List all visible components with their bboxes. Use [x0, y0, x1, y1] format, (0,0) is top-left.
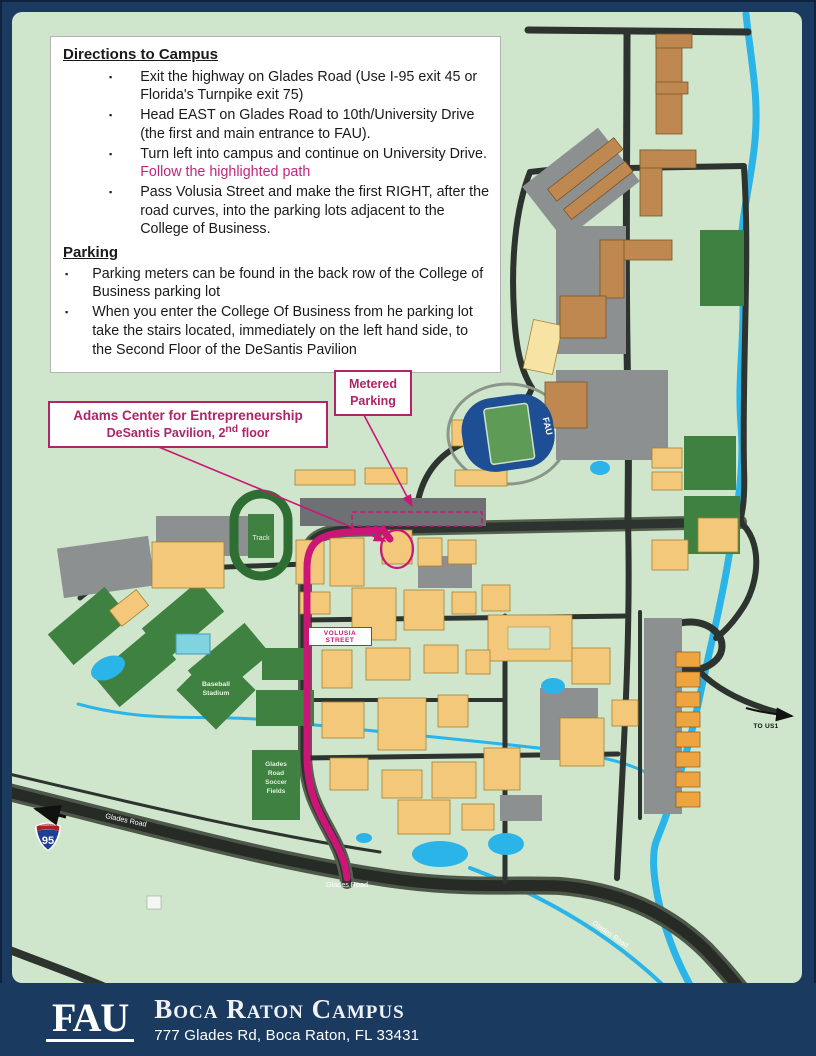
soccer-label-4: Fields: [267, 788, 286, 795]
parking-lot: [522, 128, 640, 241]
campus-name: Boca Raton Campus: [154, 995, 419, 1023]
baseball-stadium-label: Baseball: [202, 681, 230, 688]
parking-note-text: Parking meters can be found in the back …: [92, 265, 490, 302]
metered-parking-label: Metered Parking: [334, 370, 412, 416]
parking-note: ▪ When you enter the College Of Business…: [63, 303, 490, 359]
adams-center-title: Adams Center for Entrepreneurship: [52, 408, 324, 423]
direction-step-text: Head EAST on Glades Road to 10th/Univers…: [140, 106, 490, 143]
building: [322, 702, 364, 738]
apartment-building: [676, 672, 700, 687]
practice-field: [262, 648, 306, 680]
baseball-stadium-label2: Stadium: [203, 690, 230, 697]
bullet-marker: ▪: [65, 303, 68, 359]
building: [560, 296, 606, 338]
building: [322, 650, 352, 688]
apartment-building: [676, 712, 700, 727]
apartment-building: [676, 652, 700, 667]
dorm-building: [600, 240, 624, 298]
adams-subtitle-pre: DeSantis Pavilion, 2: [107, 426, 226, 440]
dorm-building: [656, 82, 688, 94]
building: [652, 448, 682, 468]
parking-note-text: When you enter the College Of Business f…: [92, 303, 490, 359]
athletic-field: [700, 230, 744, 306]
building: [652, 472, 682, 490]
adams-center-subtitle: DeSantis Pavilion, 2nd floor: [52, 424, 324, 440]
building: [365, 468, 407, 484]
highlighted-path-note: Follow the highlighted path: [140, 164, 310, 180]
building: [698, 518, 738, 552]
pond: [356, 833, 372, 843]
glades-road-label-center: Glades Road: [326, 880, 368, 889]
building: [438, 695, 468, 727]
directions-box: Directions to Campus ▪ Exit the highway …: [50, 36, 501, 373]
campus-map-page: FAU INTERSTATE 95: [0, 0, 816, 1056]
direction-step: ▪ Exit the highway on Glades Road (Use I…: [63, 68, 490, 105]
athletic-field: [684, 436, 736, 490]
adams-center-label: Adams Center for Entrepreneurship DeSant…: [48, 401, 328, 448]
building: [560, 718, 604, 766]
north-boundary-road: [528, 30, 748, 32]
fau-logo: FAU: [46, 998, 134, 1042]
apartment-building: [676, 752, 700, 767]
bullet-marker: ▪: [109, 145, 112, 182]
building: [484, 748, 520, 790]
pond: [590, 461, 610, 475]
footer-bar: FAU Boca Raton Campus 777 Glades Rd, Boc…: [0, 983, 816, 1056]
track-label: Track: [252, 535, 270, 542]
building: [652, 540, 688, 570]
apartment-building: [676, 692, 700, 707]
building: [295, 470, 355, 485]
pond: [488, 833, 524, 855]
direction-step-text-plain: Turn left into campus and continue on Un…: [140, 146, 487, 162]
pond: [412, 841, 468, 867]
direction-step-text: Turn left into campus and continue on Un…: [140, 145, 490, 182]
parking-title: Parking: [63, 243, 490, 263]
building: [466, 650, 490, 674]
building: [462, 804, 494, 830]
soccer-label-1: Glades: [265, 761, 287, 768]
direction-step: ▪ Head EAST on Glades Road to 10th/Unive…: [63, 106, 490, 143]
to-us1-label: TO US1: [753, 723, 778, 730]
bullet-marker: ▪: [109, 106, 112, 143]
bullet-marker: ▪: [109, 68, 112, 105]
interstate-label: INTERSTATE: [40, 823, 56, 827]
building: [378, 698, 426, 750]
footer-text: Boca Raton Campus 777 Glades Rd, Boca Ra…: [154, 995, 419, 1043]
pond: [541, 678, 565, 694]
road-southwest: [12, 944, 112, 983]
i95-number: 95: [42, 835, 54, 847]
courtyard: [508, 627, 550, 649]
building: [418, 538, 442, 566]
building: [366, 648, 410, 680]
tennis-courts: [176, 634, 210, 654]
volusia-street-label: VOLUSIA STREET: [308, 627, 372, 646]
adams-subtitle-sup: nd: [225, 424, 238, 435]
parking-lot: [500, 795, 542, 821]
building: [330, 538, 364, 586]
soccer-label-3: Soccer: [265, 779, 287, 786]
building: [424, 645, 458, 673]
dorm-building: [656, 34, 692, 48]
building: [612, 700, 638, 726]
direction-step: ▪ Pass Volusia Street and make the first…: [63, 183, 490, 239]
directions-title: Directions to Campus: [63, 45, 490, 65]
building: [382, 770, 422, 798]
building: [432, 762, 476, 798]
stadium-field: [484, 403, 535, 465]
direction-step-text: Exit the highway on Glades Road (Use I-9…: [140, 68, 490, 105]
building: [152, 542, 224, 588]
building: [572, 648, 610, 684]
dorm-building: [640, 150, 696, 168]
football-stadium: FAU: [457, 390, 558, 476]
athletic-field: [48, 587, 130, 665]
direction-step: ▪ Turn left into campus and continue on …: [63, 145, 490, 182]
apartment-building: [676, 732, 700, 747]
campus-map: FAU INTERSTATE 95: [12, 12, 802, 983]
legend-box: [147, 896, 161, 909]
building: [523, 319, 563, 374]
building: [330, 758, 368, 790]
building: [398, 800, 450, 834]
adams-subtitle-post: floor: [238, 426, 269, 440]
building: [404, 590, 444, 630]
parking-note: ▪ Parking meters can be found in the bac…: [63, 265, 490, 302]
i95-shield: INTERSTATE 95: [35, 823, 61, 852]
soccer-label-2: Road: [268, 770, 284, 777]
bullet-marker: ▪: [109, 183, 112, 239]
metered-leader-arrow: [356, 400, 412, 506]
campus-address: 777 Glades Rd, Boca Raton, FL 33431: [154, 1027, 419, 1044]
direction-step-text: Pass Volusia Street and make the first R…: [140, 183, 490, 239]
building: [452, 592, 476, 614]
apartment-building: [676, 792, 700, 807]
building: [455, 470, 507, 486]
building: [448, 540, 476, 564]
us1-exit-road: [700, 672, 776, 712]
apartment-building: [676, 772, 700, 787]
building: [482, 585, 510, 611]
bullet-marker: ▪: [65, 265, 68, 302]
